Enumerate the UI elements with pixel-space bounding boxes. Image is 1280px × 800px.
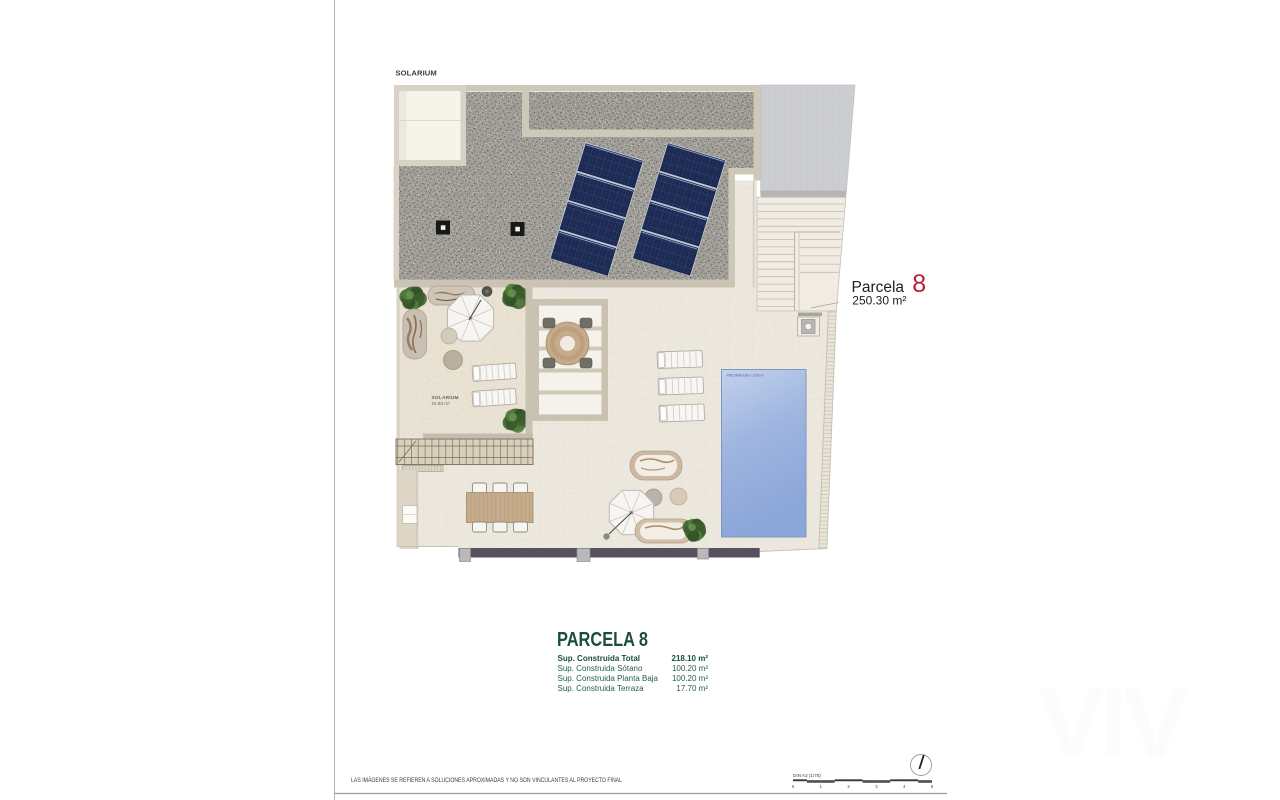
svg-text:8: 8 xyxy=(912,270,926,298)
svg-text:Sup. Construida Terraza: Sup. Construida Terraza xyxy=(558,684,645,693)
svg-text:100.20 m²: 100.20 m² xyxy=(672,664,708,673)
svg-text:22.80 m²: 22.80 m² xyxy=(432,401,451,406)
svg-text:100.20 m²: 100.20 m² xyxy=(672,674,708,683)
svg-text:VIV: VIV xyxy=(1038,666,1189,778)
svg-text:Sup. Construida Total: Sup. Construida Total xyxy=(558,654,641,663)
svg-text:SOLARIUM: SOLARIUM xyxy=(396,69,437,78)
svg-text:PARCELA 8: PARCELA 8 xyxy=(557,628,648,651)
svg-text:218.10 m²: 218.10 m² xyxy=(672,654,709,663)
svg-text:250.30 m²: 250.30 m² xyxy=(852,293,906,307)
svg-text:LAS IMÁGENES SE REFIEREN A SOL: LAS IMÁGENES SE REFIEREN A SOLUCIONES AP… xyxy=(351,777,623,784)
svg-text:17.70 m²: 17.70 m² xyxy=(676,684,708,693)
svg-text:DIN A3 (1/75): DIN A3 (1/75) xyxy=(793,773,821,778)
svg-text:Sup. Construida Planta Baja: Sup. Construida Planta Baja xyxy=(558,674,659,683)
svg-text:Sup. Construida Sótano: Sup. Construida Sótano xyxy=(558,664,643,673)
svg-text:PISCINA 6,00 x 3,00 m: PISCINA 6,00 x 3,00 m xyxy=(727,374,764,378)
